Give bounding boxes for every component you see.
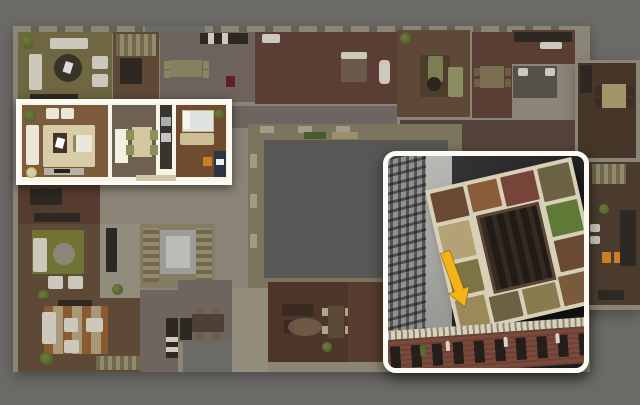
hl-terrace	[136, 175, 176, 181]
cabinet	[580, 65, 592, 93]
room-bedroom-zone	[255, 32, 397, 104]
dining-table	[602, 84, 626, 108]
wall-stub	[250, 154, 257, 168]
room-living-olive	[18, 32, 112, 102]
chair	[474, 79, 480, 87]
wardrobe	[106, 228, 117, 272]
room-corridor-bl	[140, 290, 178, 372]
armchair	[61, 108, 74, 119]
stair-hall	[140, 224, 215, 288]
room-living-bc	[268, 282, 348, 362]
kitchen-counter	[620, 210, 636, 266]
plant	[24, 109, 36, 123]
stairs	[96, 356, 140, 370]
cabinet	[226, 76, 235, 87]
wall-stub	[260, 126, 274, 133]
chair	[32, 206, 40, 212]
plant	[214, 109, 224, 119]
chair	[474, 68, 480, 76]
tv	[54, 169, 70, 173]
stairs	[116, 34, 156, 56]
statue	[445, 341, 450, 351]
statue	[503, 337, 508, 347]
rug	[180, 133, 214, 145]
dining-table	[328, 306, 344, 338]
hl-dining-room	[112, 105, 156, 177]
appliance	[262, 34, 280, 43]
appliance	[590, 236, 600, 244]
green-figure	[420, 345, 426, 355]
armchair	[64, 340, 79, 353]
chair	[203, 61, 209, 69]
plant	[112, 284, 123, 295]
armchair	[46, 108, 59, 119]
dining-table	[192, 314, 224, 332]
coffee-table	[64, 318, 78, 332]
sink	[518, 68, 528, 76]
chair	[505, 79, 511, 87]
stairs	[592, 164, 626, 184]
chair	[505, 68, 511, 76]
desk	[120, 58, 142, 84]
statue	[555, 333, 560, 343]
chair	[164, 61, 170, 69]
kitchen-counter	[598, 290, 624, 300]
chair	[602, 252, 611, 263]
arrow-shape	[440, 250, 469, 307]
dining-table	[132, 127, 152, 157]
dining-table	[30, 188, 62, 205]
room-kitchen-right	[585, 162, 640, 305]
inner-courtyard	[476, 202, 556, 294]
plant	[40, 352, 53, 365]
sofa	[42, 312, 56, 344]
room-patch	[467, 178, 503, 212]
armchair	[68, 276, 83, 289]
kitchen-counter	[200, 33, 248, 44]
chair	[322, 326, 328, 334]
chair	[213, 333, 221, 339]
room-cream-bc	[232, 288, 268, 372]
chair	[50, 206, 58, 212]
chair	[203, 70, 209, 78]
wall-stub	[250, 234, 257, 248]
stool	[203, 157, 212, 166]
room-patch	[522, 282, 561, 315]
armchair	[86, 318, 103, 332]
chair	[195, 308, 203, 314]
chair	[126, 145, 134, 155]
hl-bedroom	[176, 105, 226, 177]
room-tile-bc	[178, 280, 232, 342]
chair	[595, 86, 602, 95]
kitchen-counter	[180, 318, 192, 340]
armchair	[73, 135, 92, 152]
room-dining-midleft	[18, 183, 100, 224]
room-living-midleft	[18, 224, 100, 300]
sofa	[29, 54, 42, 90]
elevator-car	[166, 236, 190, 268]
pillow	[341, 52, 367, 59]
bathtub	[379, 60, 390, 84]
chair	[595, 98, 602, 107]
chair	[195, 333, 203, 339]
room-side-midleft	[100, 224, 140, 300]
pillow	[183, 111, 190, 129]
room-dining-red	[472, 32, 512, 118]
rug	[53, 243, 75, 265]
armchair	[48, 276, 63, 289]
room-bath	[513, 66, 557, 98]
room-patch	[558, 269, 589, 306]
room-sliver-right	[348, 282, 383, 362]
room-living-bottomleft	[18, 298, 140, 372]
stairs	[196, 228, 212, 282]
hl-living-room	[22, 105, 108, 177]
overview-inset[interactable]	[383, 151, 589, 373]
room-kitchen-diner	[160, 32, 255, 102]
side-table	[26, 167, 37, 178]
plant	[400, 33, 411, 44]
coffee-table	[427, 77, 441, 91]
chair	[627, 86, 634, 95]
sofa	[448, 67, 463, 97]
kitchen-counter	[166, 318, 178, 358]
room-patch	[430, 186, 470, 223]
laptop	[216, 159, 224, 165]
room-study	[113, 32, 159, 102]
room-patch	[554, 234, 589, 272]
floorplan-scene	[0, 0, 640, 405]
chair	[164, 70, 170, 78]
sink	[161, 117, 171, 126]
chair	[322, 308, 328, 316]
highlighted-apartment[interactable]	[16, 99, 232, 185]
chair	[627, 98, 634, 107]
chair	[150, 130, 158, 140]
sofa	[50, 38, 88, 49]
bench	[332, 132, 358, 139]
room-kitchen-tr	[512, 30, 575, 64]
chair	[126, 130, 134, 140]
stairs	[143, 228, 159, 282]
dining-table	[170, 60, 202, 77]
chair	[213, 308, 221, 314]
toilet	[545, 68, 555, 76]
plant	[21, 34, 34, 49]
hl-kitchen	[160, 105, 172, 169]
armchair	[92, 74, 108, 87]
room-patch	[537, 162, 576, 202]
plant	[599, 204, 609, 214]
dining-table	[480, 66, 504, 88]
planter	[304, 132, 326, 139]
rug	[288, 318, 322, 336]
stove	[161, 133, 171, 142]
room-patch	[489, 290, 524, 322]
plant	[322, 342, 332, 352]
kitchen-counter	[514, 32, 572, 42]
room-living-sage	[397, 30, 470, 117]
armchair	[92, 56, 108, 69]
location-arrow	[428, 236, 478, 316]
kitchen-counter	[34, 213, 80, 222]
room-patch	[546, 199, 584, 237]
sofa	[33, 238, 47, 272]
chair	[150, 145, 158, 155]
sofa	[26, 125, 39, 165]
oven	[540, 42, 562, 49]
bed	[182, 110, 214, 132]
wall-stub	[250, 194, 257, 208]
room-dining-right	[578, 63, 636, 158]
sofa	[282, 304, 314, 316]
footprint-notch-bottom	[183, 342, 232, 372]
appliance	[590, 224, 600, 232]
room-patch	[500, 170, 540, 207]
